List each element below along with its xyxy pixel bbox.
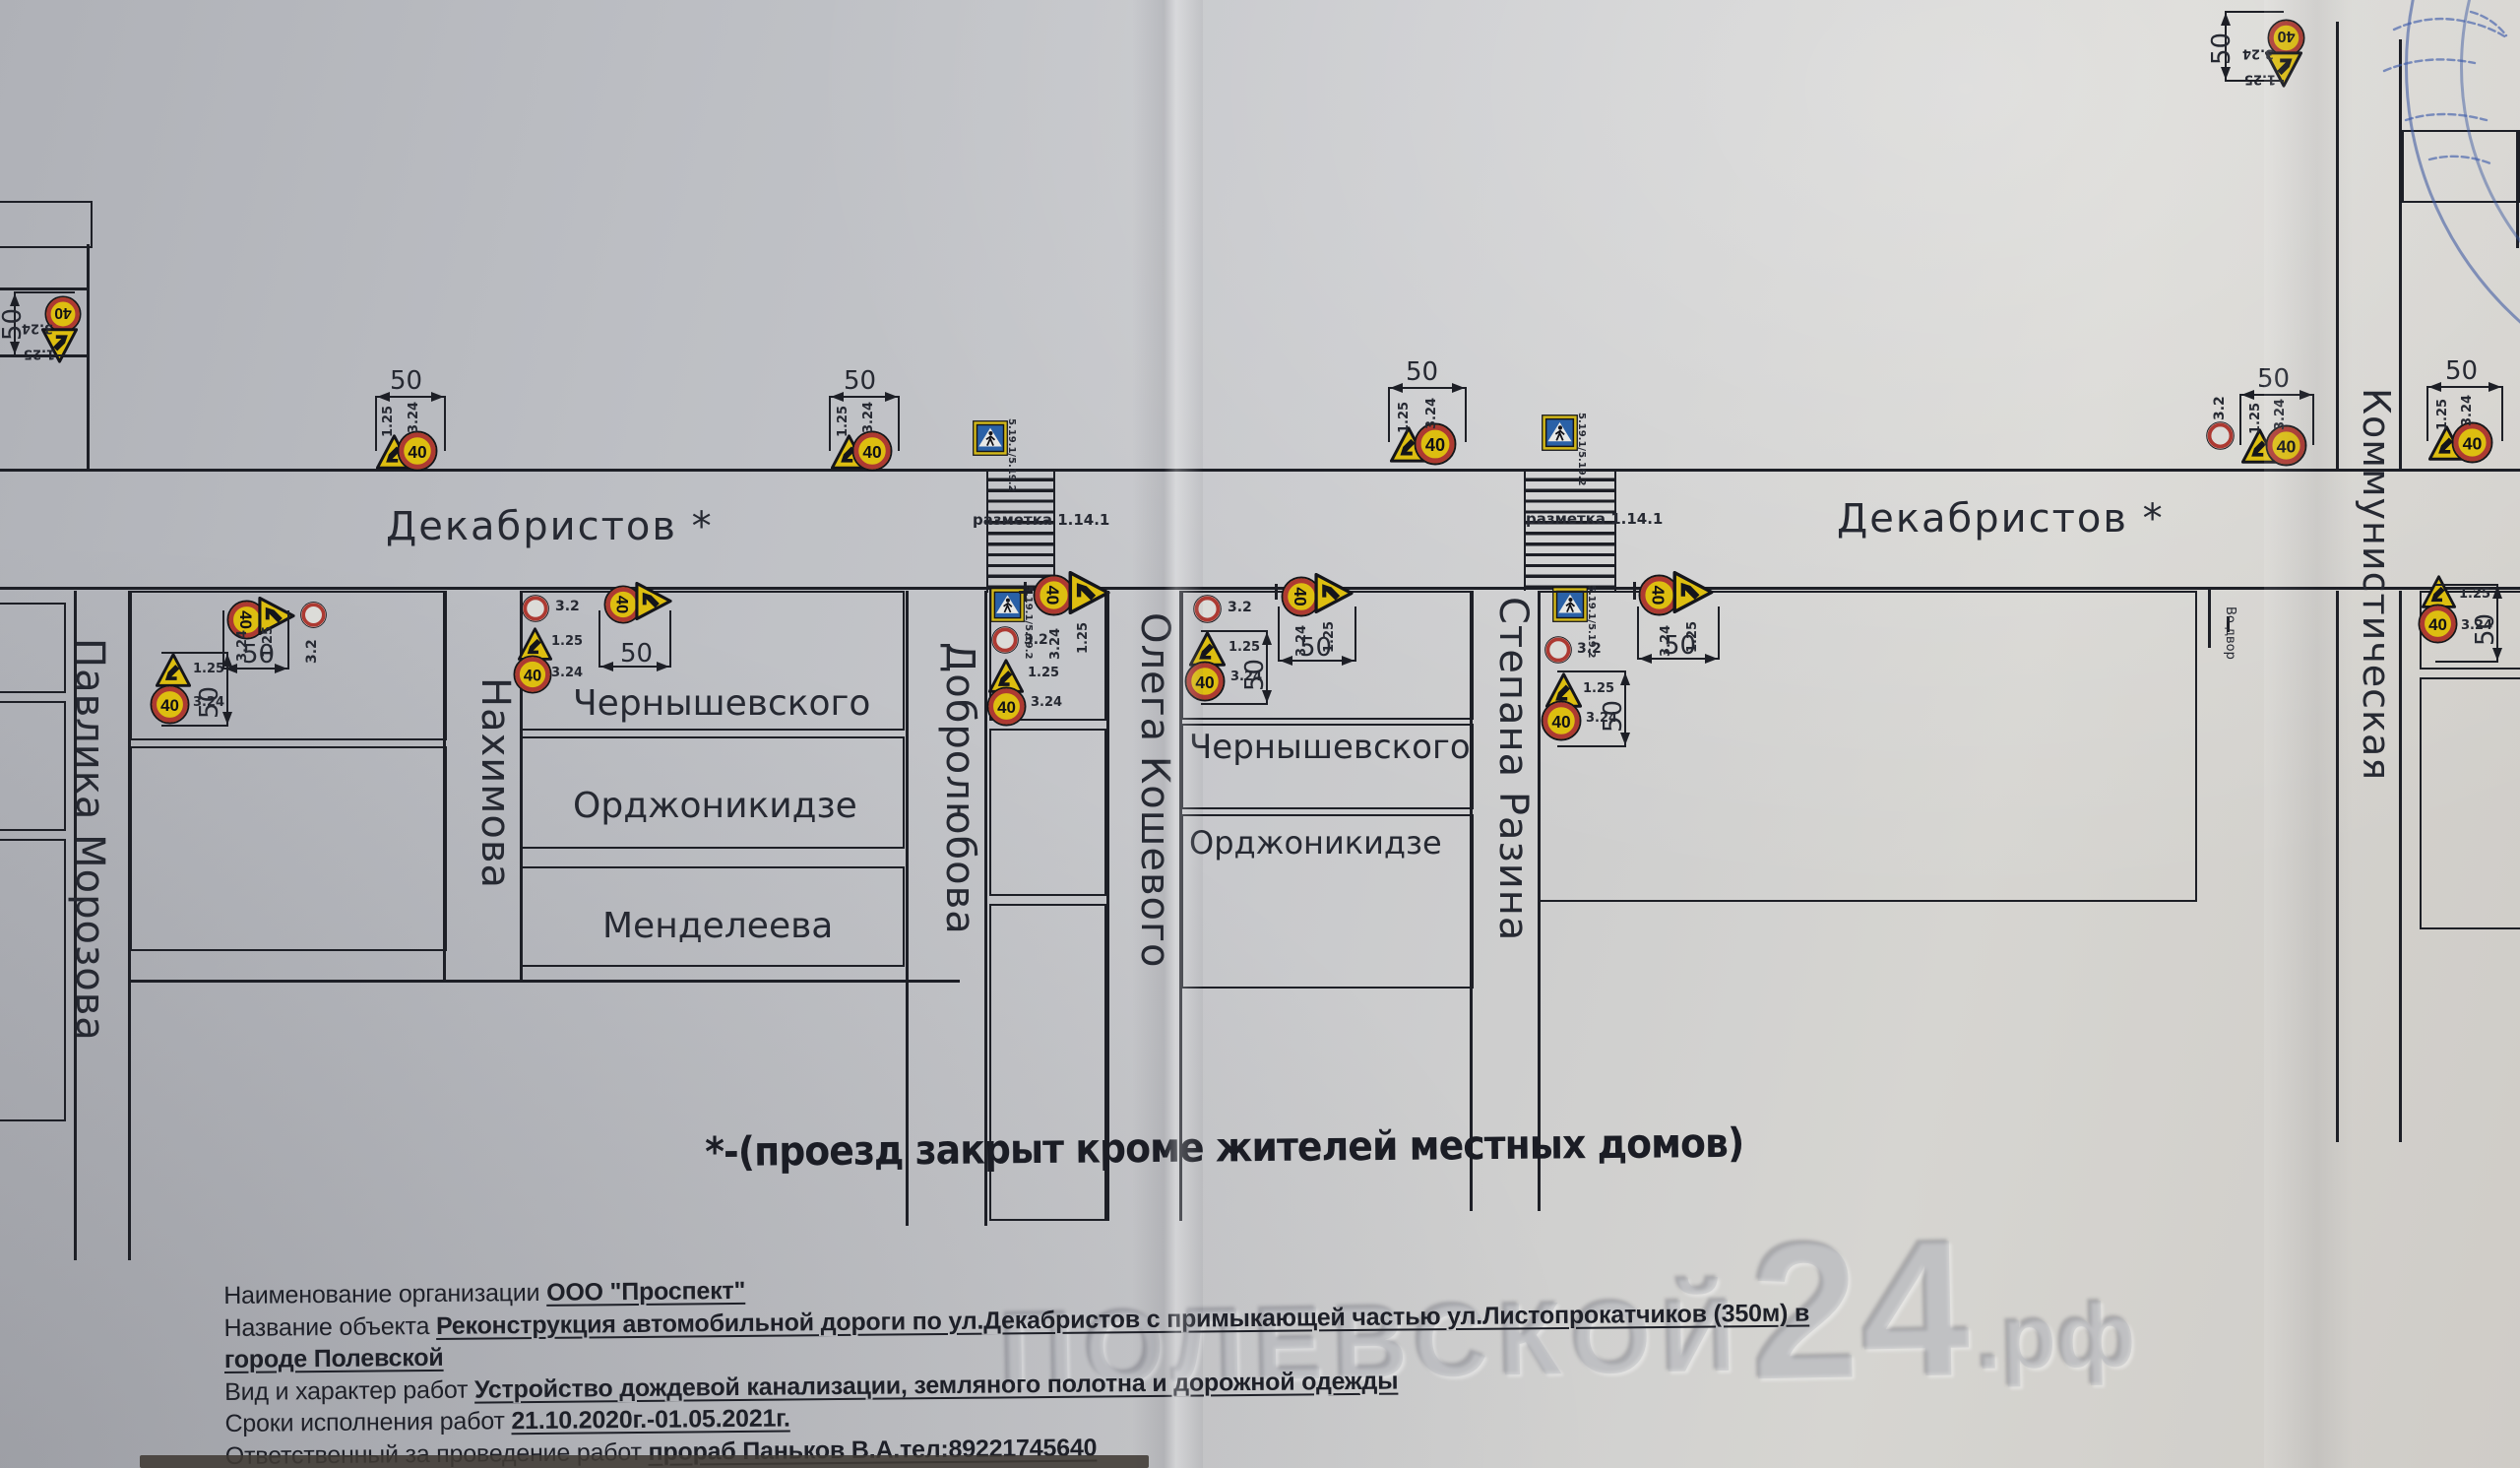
svg-text:40: 40 bbox=[2277, 436, 2297, 456]
sign-speed-limit-40: 40 bbox=[513, 655, 552, 694]
footer-row-label: Вид и характер работ bbox=[224, 1375, 474, 1405]
sign-no-entry-32 bbox=[521, 594, 550, 623]
building-block bbox=[989, 729, 1106, 896]
marking-1141-label: разметка 1.14.1 bbox=[973, 513, 1109, 529]
dimension-tick bbox=[1718, 606, 1720, 658]
footer-row-value: Устройство дождевой канализации, земляно… bbox=[474, 1367, 1399, 1403]
dimension-tick bbox=[222, 610, 224, 668]
dimension-arrow bbox=[2492, 586, 2502, 599]
street-label-dekabristov-left: Декабристов * bbox=[386, 506, 714, 547]
svg-text:40: 40 bbox=[1425, 435, 1445, 455]
dimension-arrow bbox=[1620, 672, 1630, 685]
dimension-arrow bbox=[885, 392, 898, 402]
dimension-tick bbox=[2239, 394, 2241, 445]
distance-50-label: 50 bbox=[2445, 358, 2478, 385]
sign-code-125: 1.25 bbox=[2459, 588, 2490, 602]
sign-code-324: 3.24 bbox=[1031, 696, 1062, 710]
dimension-arrow bbox=[1705, 654, 1718, 664]
dimension-tick bbox=[1637, 606, 1639, 658]
marking-1141-label: разметка 1.14.1 bbox=[1526, 512, 1663, 528]
street-label-chernyshevskogo-right: Чернышевского bbox=[1189, 731, 1471, 766]
svg-text:40: 40 bbox=[613, 596, 631, 613]
distance-50-label: 50 bbox=[1406, 359, 1438, 386]
street-line bbox=[1470, 591, 1473, 1211]
svg-text:40: 40 bbox=[2428, 615, 2447, 634]
dimension-arrow bbox=[275, 664, 287, 673]
dimension-tick bbox=[14, 291, 75, 293]
building-block bbox=[989, 904, 1106, 1221]
distance-50-label: 50 bbox=[2257, 366, 2290, 393]
sign-speed-limit-40: 40 bbox=[150, 684, 190, 725]
sign-code-125: 1.25 bbox=[1028, 667, 1059, 680]
sign-no-entry-32 bbox=[2205, 420, 2236, 451]
dimension-tick bbox=[1465, 387, 1467, 442]
svg-text:40: 40 bbox=[1291, 587, 1310, 606]
dimension-tick bbox=[1557, 745, 1624, 747]
svg-text:40: 40 bbox=[160, 696, 179, 715]
dimension-arrow bbox=[2221, 13, 2231, 26]
dimension-tick bbox=[444, 396, 446, 451]
svg-text:40: 40 bbox=[54, 304, 72, 321]
dimension-arrow bbox=[1452, 383, 1465, 393]
sign-speed-limit-40: 40 bbox=[397, 430, 438, 472]
street-label-mendeleeva-left: Менделеева bbox=[602, 908, 833, 945]
footer-block: Наименование организации ООО "Проспект"Н… bbox=[223, 1264, 1869, 1468]
svg-text:40: 40 bbox=[997, 698, 1016, 717]
sign-code-125: 1.25 bbox=[1228, 641, 1260, 655]
dimension-arrow bbox=[377, 392, 390, 402]
svg-text:40: 40 bbox=[1195, 672, 1214, 692]
sign-roadworks bbox=[156, 653, 191, 688]
street-line bbox=[2336, 22, 2339, 469]
dimension-tick bbox=[2501, 386, 2503, 441]
crosswalk-marking bbox=[1524, 471, 1616, 591]
dimension-arrow bbox=[1620, 733, 1630, 745]
street-label-ordzhonikidze-right: Орджоникидзе bbox=[1189, 827, 1442, 861]
footer-row-label: Наименование организации bbox=[223, 1279, 546, 1309]
dimension-arrow bbox=[431, 392, 444, 402]
driveway-line bbox=[2208, 589, 2211, 648]
street-label-ordzhonikidze-left: Орджоникидзе bbox=[573, 788, 857, 825]
dimension-arrow bbox=[2241, 390, 2254, 400]
dimension-tick bbox=[898, 396, 900, 451]
dimension-arrow bbox=[10, 293, 20, 306]
road-dekabristov-bottom-edge bbox=[0, 587, 2520, 590]
svg-text:40: 40 bbox=[408, 442, 426, 462]
dimension-arrow bbox=[657, 662, 669, 671]
sign-speed-limit-40: 40 bbox=[2418, 604, 2458, 644]
dimension-tick bbox=[1201, 630, 1266, 632]
svg-text:40: 40 bbox=[862, 442, 881, 462]
dimension-tick bbox=[375, 396, 377, 451]
dimension-tick bbox=[2435, 584, 2496, 586]
distance-50-label: 50 bbox=[844, 368, 876, 395]
sign-no-entry-32 bbox=[299, 601, 328, 629]
sign-no-entry-32 bbox=[990, 625, 1020, 655]
dimension-arrow bbox=[600, 662, 613, 671]
sign-speed-limit-40: 40 bbox=[851, 430, 893, 472]
street-line bbox=[443, 591, 446, 981]
building-block bbox=[0, 201, 93, 248]
dimension-arrow bbox=[1342, 656, 1354, 666]
sign-code-32: 3.2 bbox=[1577, 642, 1602, 657]
sign-ped-crossing bbox=[1542, 415, 1578, 451]
dimension-tick bbox=[14, 354, 75, 356]
dimension-arrow bbox=[10, 342, 20, 354]
sign-roadworks bbox=[1671, 571, 1714, 613]
footer-row-value: ООО "Проспект" bbox=[546, 1277, 745, 1307]
sign-speed-limit-40: 40 bbox=[986, 686, 1027, 727]
svg-text:40: 40 bbox=[236, 610, 255, 629]
street-label-dekabristov-right: Декабристов * bbox=[1837, 498, 2165, 540]
dimension-tick bbox=[2435, 661, 2496, 663]
dimension-tick bbox=[161, 725, 226, 727]
building-block bbox=[130, 746, 447, 951]
dimension-tick bbox=[2312, 394, 2314, 445]
sign-roadworks bbox=[1067, 571, 1110, 614]
note-line: *-(проезд закрыт кроме жителей местных д… bbox=[705, 1119, 1744, 1176]
dimension-tick bbox=[598, 610, 600, 666]
building-block bbox=[0, 701, 66, 831]
dimension-arrow bbox=[831, 392, 844, 402]
building-block bbox=[0, 603, 66, 693]
dimension-arrow bbox=[2299, 390, 2312, 400]
sign-speed-limit-40: 40 bbox=[2265, 424, 2307, 467]
sign-code-324: 3.24 bbox=[551, 667, 583, 680]
dimension-tick bbox=[1275, 584, 1278, 600]
dimension-tick bbox=[1633, 582, 1636, 600]
footer-row-value: 21.10.2020г.-01.05.2021г. bbox=[511, 1405, 790, 1436]
distance-50-label: 50 bbox=[390, 368, 422, 395]
dimension-arrow bbox=[2492, 648, 2502, 661]
dimension-tick bbox=[1019, 591, 1033, 594]
distance-50-label: 50 bbox=[1664, 633, 1696, 660]
sign-code-125: 1.25 bbox=[193, 663, 224, 676]
dimension-arrow bbox=[2488, 382, 2501, 392]
sign-speed-limit-40: 40 bbox=[1541, 700, 1582, 741]
svg-text:40: 40 bbox=[2278, 28, 2296, 45]
sign-speed-limit-40: 40 bbox=[2451, 421, 2493, 464]
dimension-arrow bbox=[1390, 383, 1403, 393]
dimension-arrow bbox=[1639, 654, 1652, 664]
dimension-tick bbox=[287, 610, 289, 668]
dimension-tick bbox=[829, 396, 831, 451]
photo-of-traffic-scheme: Декабристов *Декабристов *403.241.2550Па… bbox=[0, 0, 2520, 1468]
dimension-arrow bbox=[1262, 690, 1272, 703]
dimension-arrow bbox=[1262, 632, 1272, 645]
dimension-tick bbox=[1278, 606, 1280, 660]
footer-row-label: Название объекта bbox=[223, 1311, 436, 1341]
stamp-handwriting bbox=[2374, 0, 2520, 231]
sign-no-entry-32 bbox=[1192, 594, 1223, 624]
dimension-tick bbox=[1201, 703, 1266, 705]
dimension-tick bbox=[1388, 387, 1390, 442]
street-line bbox=[87, 244, 90, 469]
sign-code-125: 1.25 bbox=[551, 635, 583, 649]
svg-text:40: 40 bbox=[1649, 586, 1669, 606]
sign-no-entry-32 bbox=[1543, 635, 1573, 665]
svg-text:40: 40 bbox=[1551, 712, 1570, 732]
dimension-arrow bbox=[1280, 656, 1292, 666]
dimension-tick bbox=[161, 652, 226, 654]
sign-speed-limit-40: 40 bbox=[1184, 661, 1226, 702]
dimension-tick bbox=[2225, 80, 2284, 82]
sign-code-32: 3.2 bbox=[1024, 633, 1048, 648]
dimension-arrow bbox=[224, 664, 237, 673]
dimension-tick bbox=[2426, 386, 2428, 441]
dimension-arrow bbox=[2221, 67, 2231, 80]
svg-text:40: 40 bbox=[524, 668, 541, 685]
distance-50-label: 50 bbox=[620, 641, 653, 668]
dimension-tick bbox=[669, 610, 671, 666]
svg-text:40: 40 bbox=[2463, 433, 2483, 453]
sign-ped-crossing bbox=[973, 420, 1008, 456]
street-line bbox=[128, 980, 960, 983]
sign-code-32: 3.2 bbox=[555, 600, 580, 614]
street-label-chernyshevskogo-left: Чернышевского bbox=[573, 685, 870, 723]
table-edge-shadow bbox=[140, 1455, 1149, 1468]
sign-code-125: 1.25 bbox=[1583, 682, 1614, 696]
sign-code-32: 3.2 bbox=[1228, 601, 1252, 615]
street-line bbox=[0, 287, 87, 290]
distance-50-label: 50 bbox=[1299, 635, 1332, 662]
building-block bbox=[0, 839, 66, 1121]
street-line bbox=[2399, 591, 2402, 1142]
building-block bbox=[2420, 677, 2520, 929]
dimension-arrow bbox=[2428, 382, 2441, 392]
sign-roadworks bbox=[1313, 573, 1354, 613]
svg-text:40: 40 bbox=[1043, 586, 1063, 606]
dimension-tick bbox=[2225, 11, 2284, 13]
dimension-tick bbox=[1354, 606, 1356, 660]
footer-row-label: Сроки исполнения работ bbox=[224, 1407, 511, 1437]
dimension-tick bbox=[1557, 670, 1624, 672]
street-line bbox=[2336, 591, 2339, 1142]
traffic-scheme-canvas: Декабристов *Декабристов *403.241.2550Па… bbox=[0, 0, 2520, 1468]
sign-roadworks bbox=[634, 582, 672, 620]
distance-50-label: 50 bbox=[242, 642, 275, 669]
